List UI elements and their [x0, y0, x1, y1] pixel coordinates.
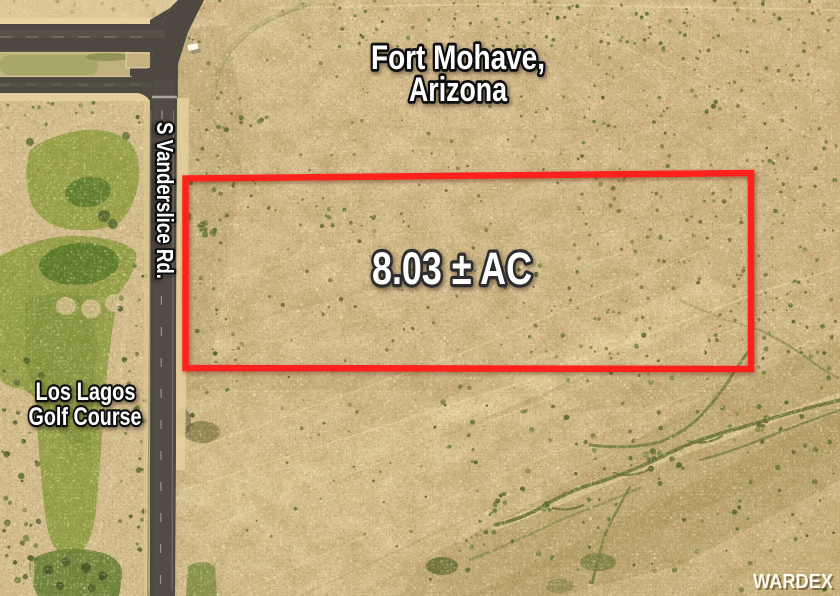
svg-text:8.03 ± AC: 8.03 ± AC: [372, 243, 532, 294]
svg-text:Golf Course: Golf Course: [29, 403, 142, 431]
svg-text:WARDEX: WARDEX: [753, 571, 834, 593]
svg-text:Arizona: Arizona: [409, 71, 508, 109]
svg-text:S Vanderslice Rd.: S Vanderslice Rd.: [152, 122, 178, 279]
svg-text:Los Lagos: Los Lagos: [36, 378, 136, 406]
